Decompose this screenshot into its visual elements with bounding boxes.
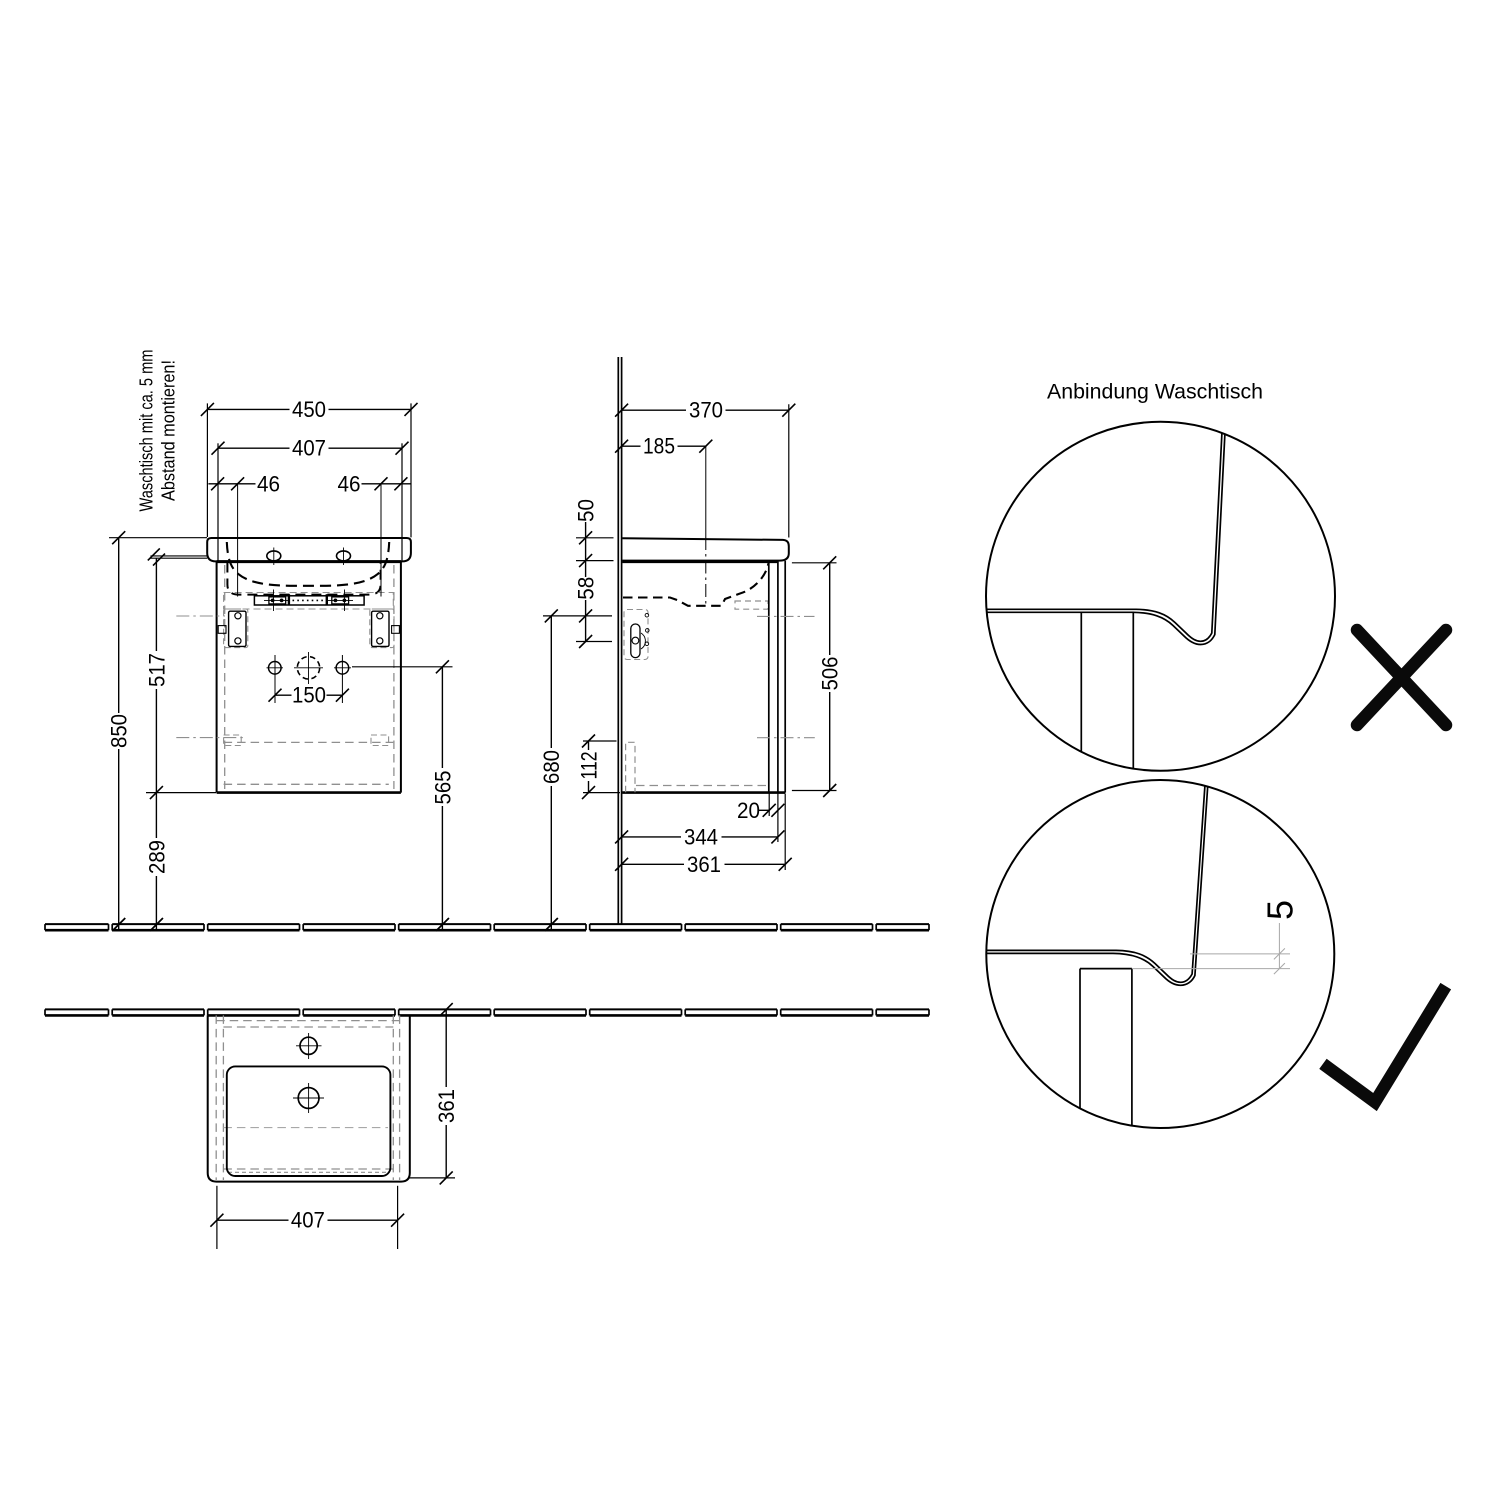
svg-text:450: 450	[292, 397, 326, 422]
svg-text:289: 289	[144, 840, 169, 874]
svg-text:Abstand montieren!: Abstand montieren!	[158, 360, 179, 501]
svg-text:58: 58	[574, 577, 599, 600]
svg-text:112: 112	[576, 752, 601, 780]
svg-text:680: 680	[539, 750, 564, 784]
svg-text:506: 506	[818, 657, 843, 691]
svg-text:407: 407	[292, 436, 326, 461]
svg-text:185: 185	[643, 434, 675, 459]
svg-text:20: 20	[737, 798, 760, 823]
svg-text:361: 361	[434, 1089, 459, 1123]
svg-text:46: 46	[338, 471, 361, 496]
svg-text:50: 50	[574, 499, 599, 522]
svg-text:150: 150	[292, 683, 326, 708]
svg-text:5: 5	[1259, 900, 1300, 920]
svg-text:565: 565	[430, 771, 455, 805]
svg-text:Waschtisch mit ca. 5 mm: Waschtisch mit ca. 5 mm	[136, 350, 157, 512]
svg-text:850: 850	[107, 714, 132, 748]
svg-text:517: 517	[144, 653, 169, 687]
svg-text:370: 370	[689, 398, 723, 423]
svg-text:361: 361	[687, 852, 721, 877]
svg-text:407: 407	[291, 1208, 325, 1233]
svg-text:Anbindung Waschtisch: Anbindung Waschtisch	[1047, 380, 1263, 404]
svg-text:344: 344	[684, 824, 718, 849]
svg-text:46: 46	[257, 471, 280, 496]
